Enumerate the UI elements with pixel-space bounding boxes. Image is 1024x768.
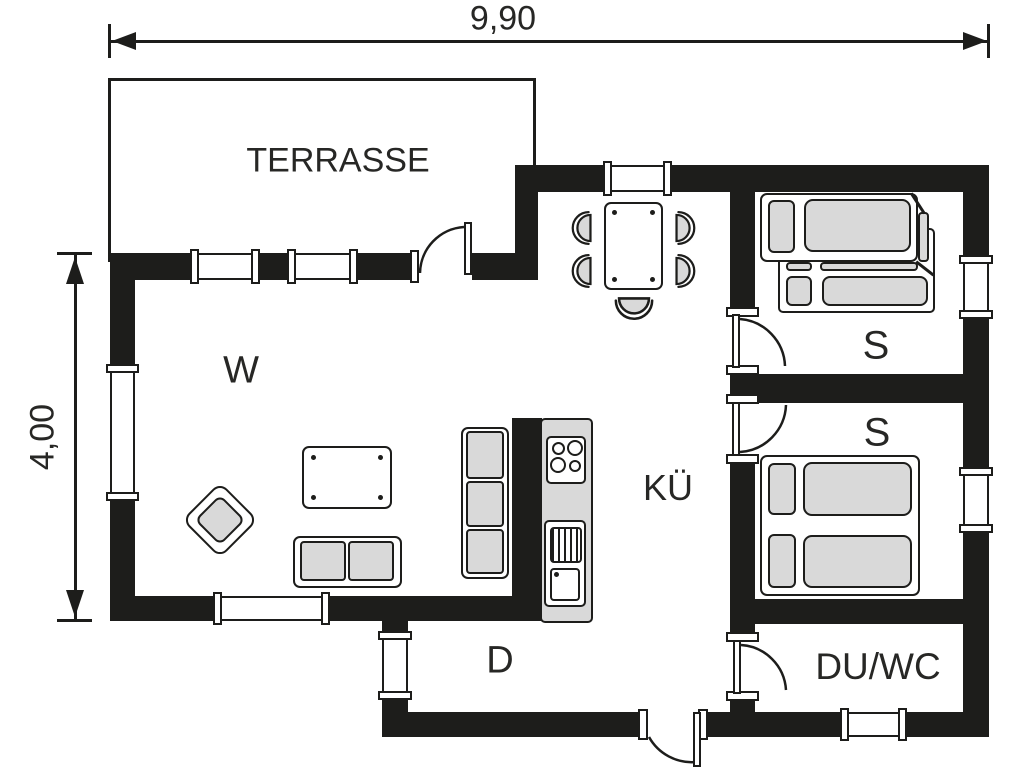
dimension-arrow-right-icon — [963, 32, 987, 50]
window-pane — [220, 596, 323, 621]
dining-table-icon — [604, 202, 663, 290]
drainer-icon — [550, 527, 582, 563]
window-pane — [610, 165, 665, 192]
chair-icon — [670, 252, 698, 290]
window — [287, 249, 358, 284]
dimension-label-height: 4,00 — [24, 404, 63, 470]
table-dot-icon — [612, 210, 617, 215]
window-jamb — [251, 249, 260, 284]
pillow-icon — [768, 463, 796, 515]
mattress-icon — [822, 276, 928, 306]
dimension-tick — [57, 252, 92, 255]
room-label-hallway: D — [486, 640, 513, 683]
dimension-arrow-up-icon — [66, 257, 84, 284]
burner-icon — [567, 440, 583, 456]
coffee-table-icon — [302, 446, 392, 509]
window-jamb — [959, 524, 993, 533]
cushion-icon — [348, 541, 394, 581]
window-jamb — [603, 161, 612, 196]
dimension-line-vertical — [74, 254, 77, 620]
pillow-icon — [768, 534, 796, 588]
table-dot-icon — [612, 277, 617, 282]
mattress-icon — [918, 212, 929, 262]
room-label-bedroom-bottom: S — [864, 411, 891, 456]
window-jamb — [663, 161, 672, 196]
chair-icon — [569, 209, 597, 247]
door-leaf — [693, 712, 701, 767]
cushion-icon — [466, 529, 504, 574]
window-pane — [963, 474, 989, 526]
window-jamb — [378, 691, 412, 700]
pillow-icon — [786, 262, 812, 271]
door-leaf — [464, 222, 472, 275]
window — [213, 592, 330, 625]
sofa-two-seat-icon — [293, 536, 402, 588]
table-dot-icon — [650, 210, 655, 215]
dimension-arrow-left-icon — [112, 32, 136, 50]
wall — [512, 418, 542, 621]
window — [840, 708, 907, 741]
room-label-kitchen: KÜ — [643, 467, 693, 509]
window-pane — [110, 371, 135, 494]
table-dot-icon — [311, 455, 316, 460]
door-jamb — [410, 250, 419, 283]
window-jamb — [959, 467, 993, 476]
door-jamb — [726, 394, 759, 404]
pillow-icon — [786, 276, 812, 306]
sink-unit-icon — [544, 520, 586, 607]
wall — [755, 599, 963, 624]
bed-double-icon — [760, 455, 920, 596]
burner-icon — [552, 442, 565, 455]
window-jamb — [959, 310, 993, 319]
room-label-bedroom-top: S — [863, 324, 890, 369]
window-pane — [197, 253, 253, 280]
chair-icon — [569, 252, 597, 290]
door-swing-arc — [649, 737, 696, 762]
window-pane — [847, 712, 900, 737]
window-jamb — [106, 364, 139, 373]
chair-icon — [670, 209, 698, 247]
floor-plan: 9,90 4,00 TERRASSE W KÜ S S D DU/WC — [0, 0, 1024, 768]
cushion-icon — [300, 541, 346, 581]
door-jamb — [726, 691, 759, 701]
sofa-three-seat-icon — [461, 427, 509, 579]
window — [603, 161, 672, 196]
burner-icon — [550, 457, 566, 473]
window-pane — [382, 638, 408, 693]
window — [959, 255, 993, 319]
window-jamb — [321, 592, 330, 625]
door-jamb — [726, 454, 759, 464]
window-jamb — [840, 708, 849, 741]
mattress-icon — [804, 199, 911, 252]
window-jamb — [349, 249, 358, 284]
stove-icon — [546, 436, 586, 484]
door-leaf — [733, 640, 741, 694]
cushion-icon — [466, 431, 504, 479]
window-jamb — [106, 492, 139, 501]
window — [378, 631, 412, 700]
table-dot-icon — [650, 277, 655, 282]
tap-icon — [554, 572, 559, 577]
window-pane — [963, 262, 989, 312]
dimension-arrow-down-icon — [66, 590, 84, 617]
table-dot-icon — [378, 455, 383, 460]
table-dot-icon — [378, 495, 383, 500]
dimension-label-width: 9,90 — [470, 0, 536, 39]
door-jamb — [726, 365, 759, 375]
mattress-icon — [820, 262, 918, 271]
cushion-icon — [466, 481, 504, 527]
table-dot-icon — [311, 495, 316, 500]
window — [959, 467, 993, 533]
door-leaf — [732, 402, 740, 456]
dimension-tick — [987, 24, 990, 58]
dimension-line-horizontal — [110, 40, 989, 43]
window-jamb — [213, 592, 222, 625]
window — [106, 364, 139, 501]
chair-icon — [612, 291, 656, 323]
wall — [755, 374, 963, 403]
dimension-tick — [108, 24, 111, 58]
burner-icon — [569, 460, 581, 472]
window-jamb — [378, 631, 412, 640]
room-label-bathroom: DU/WC — [815, 646, 940, 688]
door-jamb — [726, 307, 759, 317]
door-jamb — [638, 709, 648, 740]
window-jamb — [959, 255, 993, 264]
mattress-icon — [803, 535, 912, 588]
dimension-tick — [57, 619, 92, 622]
window-jamb — [190, 249, 199, 284]
window — [190, 249, 260, 284]
door-jamb — [726, 632, 759, 642]
window-jamb — [898, 708, 907, 741]
mattress-icon — [803, 462, 912, 516]
window-jamb — [287, 249, 296, 284]
window-pane — [294, 253, 351, 280]
door-leaf — [732, 314, 740, 368]
wall — [963, 165, 989, 737]
pillow-icon — [768, 200, 795, 253]
room-label-living: W — [223, 350, 259, 393]
room-label-terrace: TERRASSE — [246, 142, 429, 181]
